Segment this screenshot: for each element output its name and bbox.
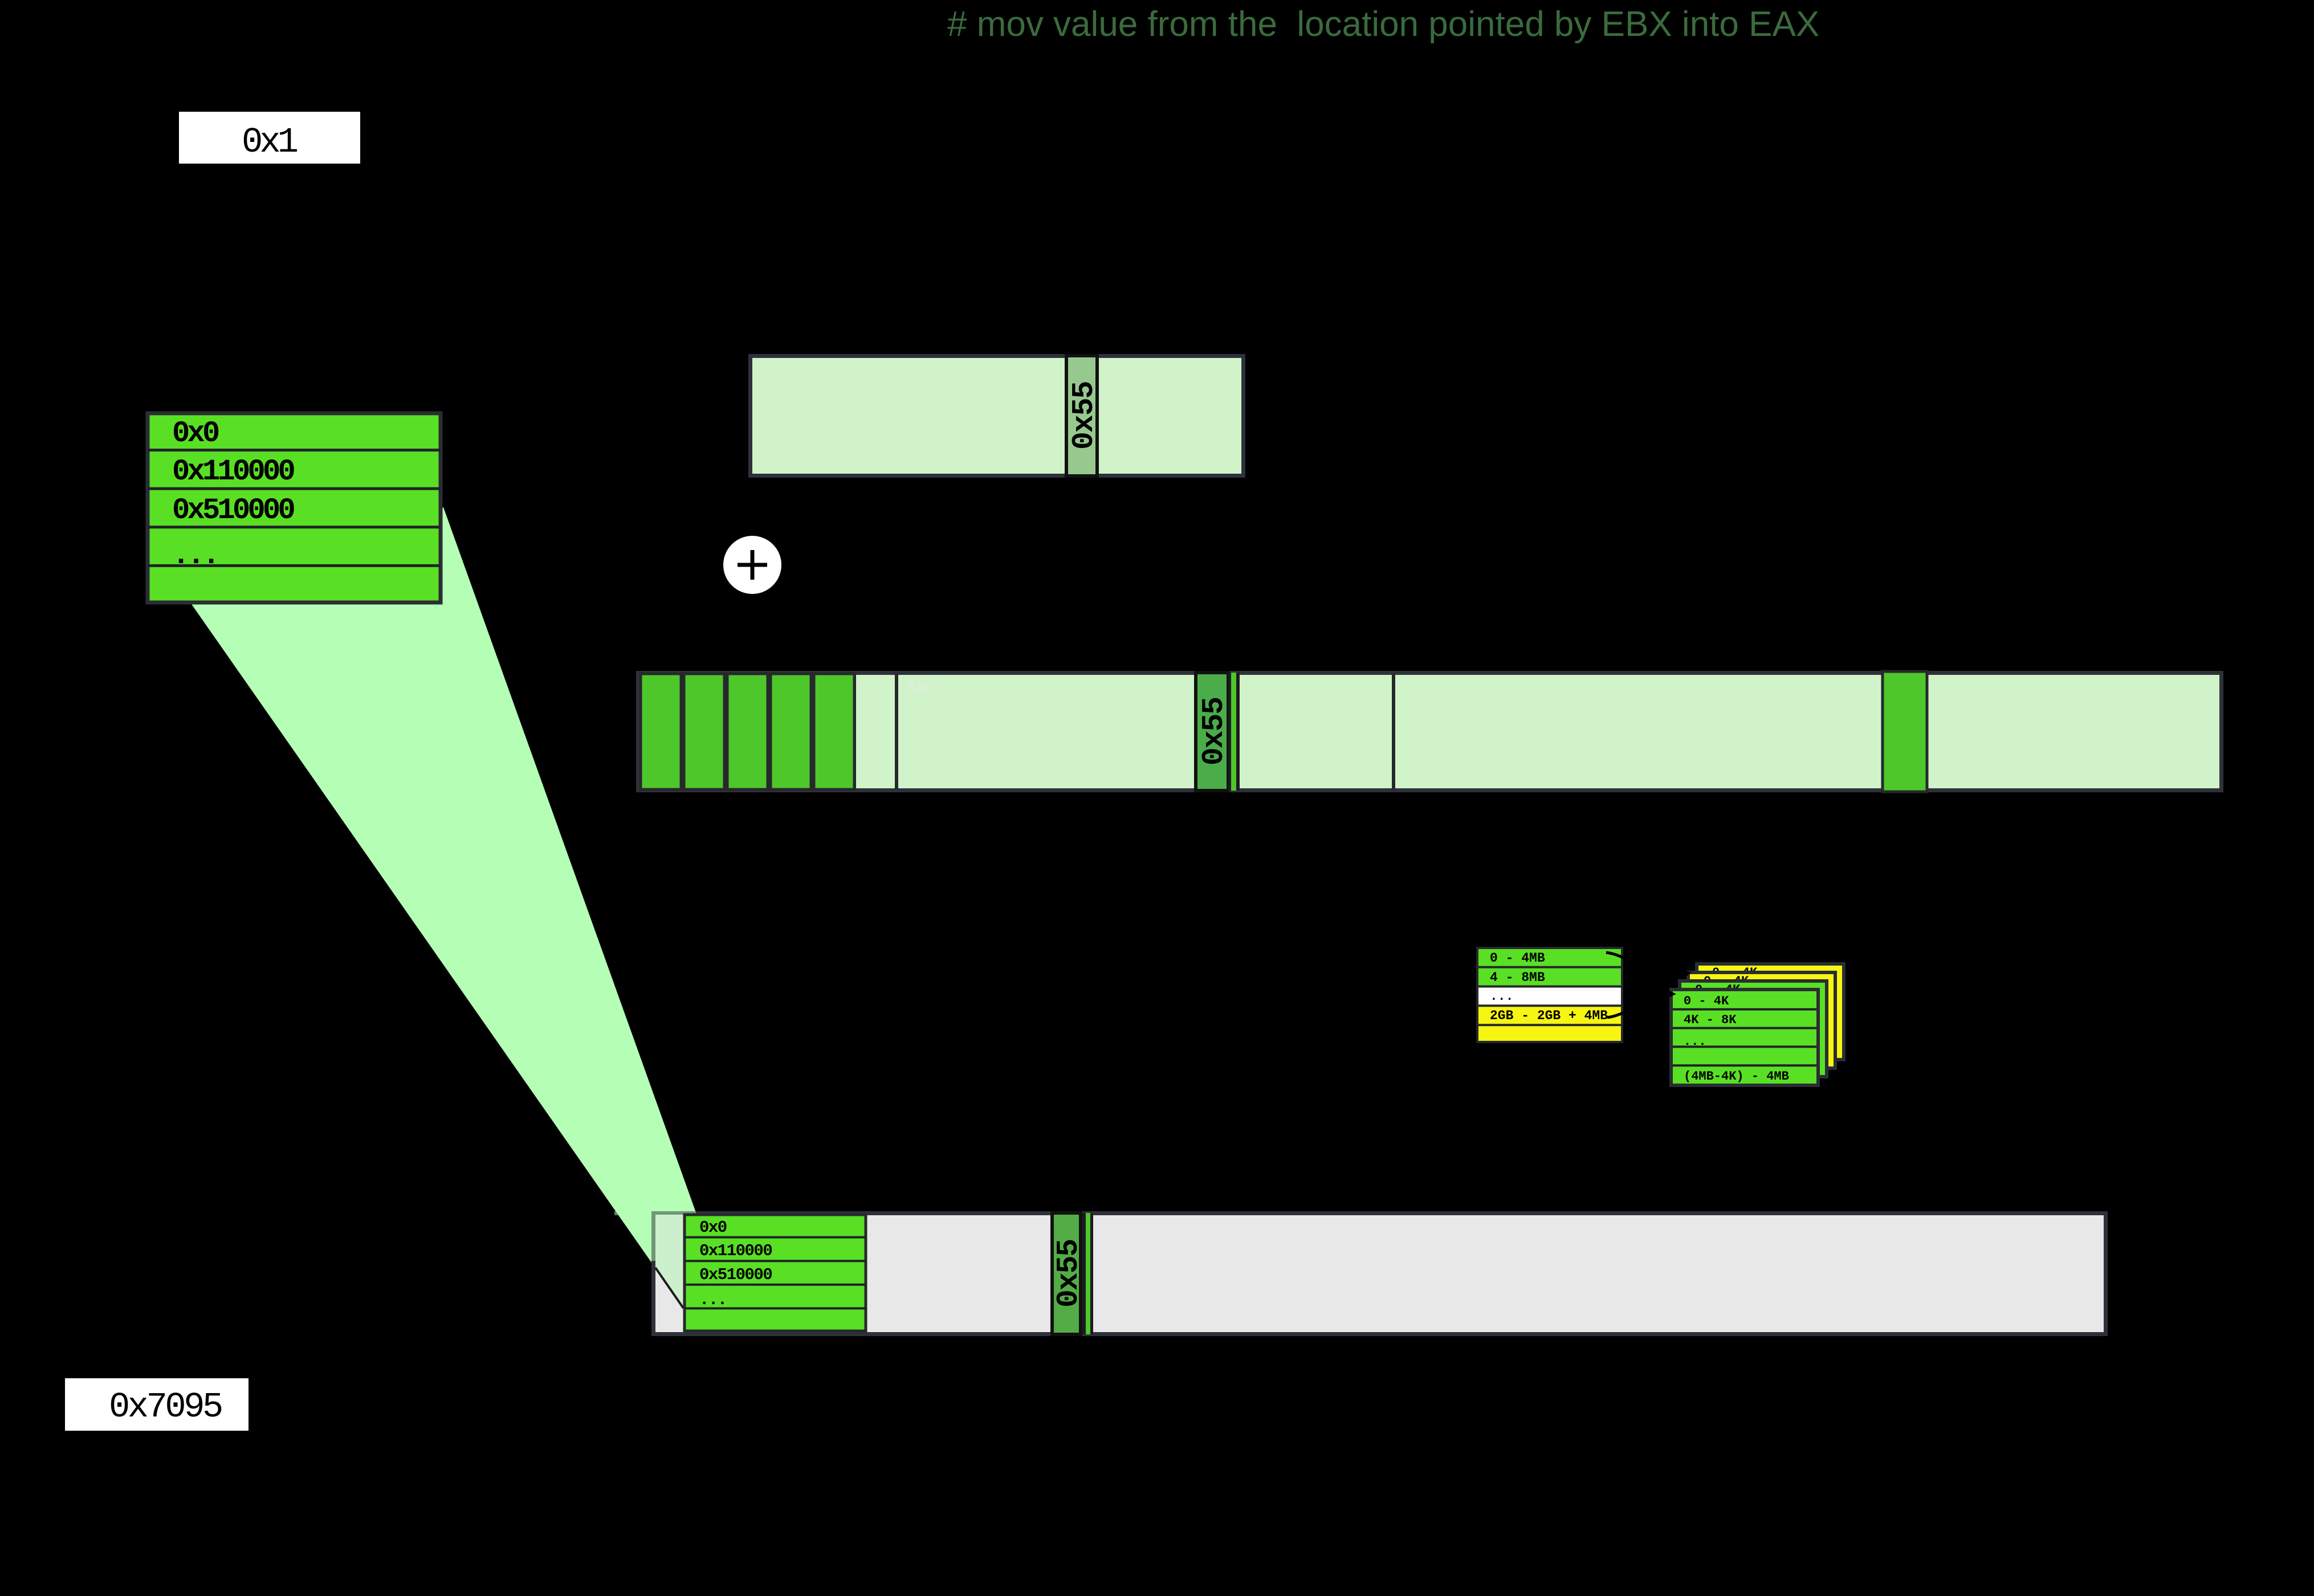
svg-text:2GB - 2GB + 4MB: 2GB - 2GB + 4MB (1490, 1008, 1608, 1023)
svg-text:0x55: 0x55 (1052, 1240, 1086, 1308)
svg-text:0x55: 0x55 (1197, 698, 1231, 766)
svg-text:0x55: 0x55 (1067, 382, 1101, 450)
svg-text:0x0: 0x0 (699, 1218, 727, 1237)
svg-text:0 - 4K: 0 - 4K (1684, 994, 1729, 1008)
svg-text:Xen: Xen (907, 677, 934, 694)
svg-text:# mov value from the location: # mov value from the location pointed by… (947, 5, 1819, 44)
svg-text:4K - 8K: 4K - 8K (1684, 1013, 1737, 1027)
svg-text:...: ... (172, 539, 218, 572)
svg-text:...: ... (1684, 1035, 1706, 1049)
svg-text:0 - 4MB: 0 - 4MB (1490, 951, 1545, 966)
svg-text:0x7095: 0x7095 (109, 1387, 222, 1427)
svg-text:...: ... (699, 1290, 727, 1309)
svg-text:0x510000: 0x510000 (172, 494, 295, 527)
svg-text:0x110000: 0x110000 (699, 1241, 772, 1260)
svg-text:(4MB-4K) - 4MB: (4MB-4K) - 4MB (1684, 1069, 1789, 1084)
svg-text:0x1: 0x1 (242, 122, 298, 162)
svg-text:0x110000: 0x110000 (172, 455, 295, 488)
svg-text:...: ... (1490, 989, 1513, 1004)
svg-text:0x0: 0x0 (172, 417, 219, 450)
svg-text:0x510000: 0x510000 (699, 1265, 772, 1284)
svg-text:4 - 8MB: 4 - 8MB (1490, 970, 1545, 985)
